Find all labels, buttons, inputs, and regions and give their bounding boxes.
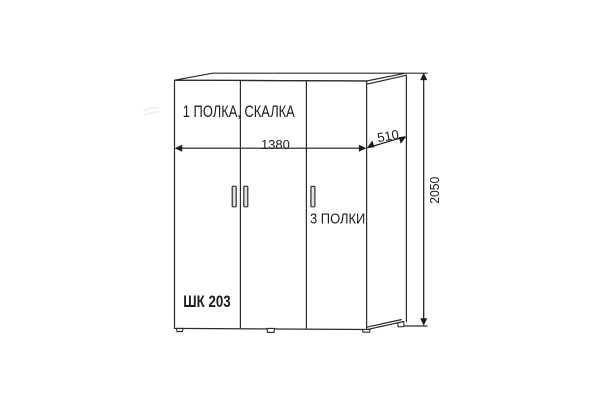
svg-text:ШК 203: ШК 203 xyxy=(183,293,230,311)
svg-text:1 ПОЛКА, СКАЛКА: 1 ПОЛКА, СКАЛКА xyxy=(183,103,295,121)
svg-text:2050: 2050 xyxy=(427,177,442,204)
svg-text:1380: 1380 xyxy=(261,137,290,152)
svg-text:3 ПОЛКИ: 3 ПОЛКИ xyxy=(310,211,365,228)
